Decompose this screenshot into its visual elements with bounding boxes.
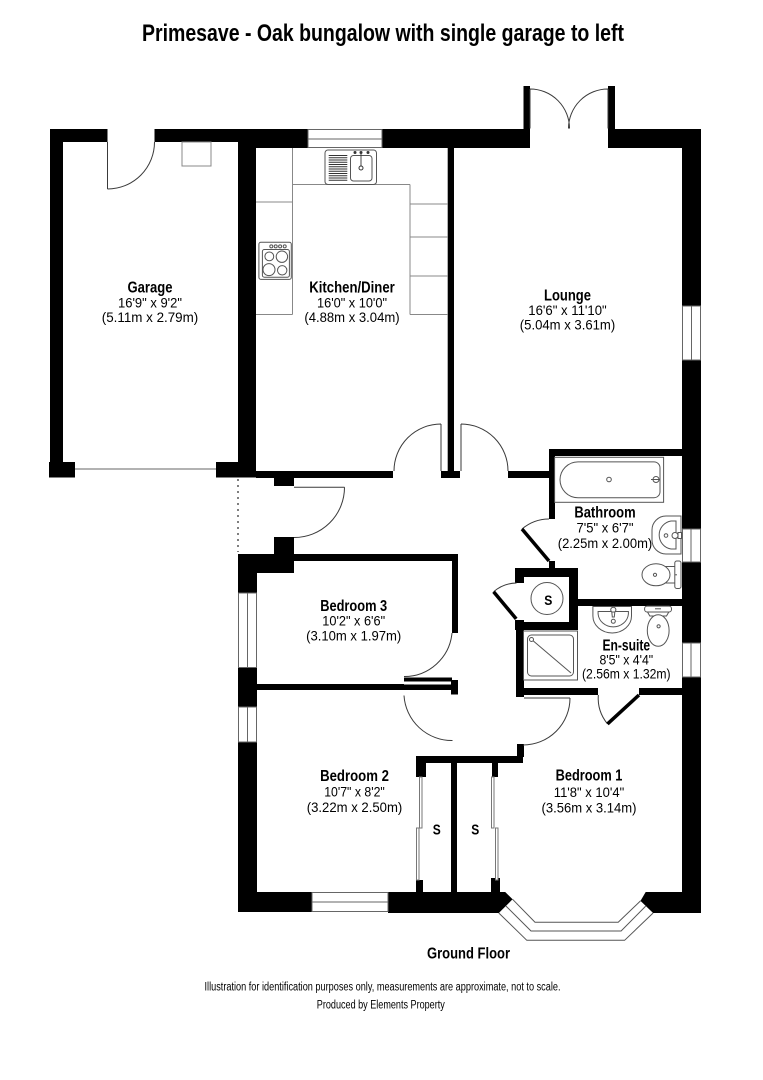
svg-text:S: S xyxy=(471,821,479,838)
svg-text:Ground Floor: Ground Floor xyxy=(427,945,510,962)
svg-text:(4.88m x 3.04m): (4.88m x 3.04m) xyxy=(304,309,399,325)
svg-text:Bedroom 1: Bedroom 1 xyxy=(556,768,623,785)
svg-text:Primesave - Oak bungalow with: Primesave - Oak bungalow with single gar… xyxy=(142,20,624,47)
svg-text:(3.56m x 3.14m): (3.56m x 3.14m) xyxy=(542,799,637,815)
svg-text:(5.11m x 2.79m): (5.11m x 2.79m) xyxy=(102,309,199,325)
svg-text:7'5" x 6'7": 7'5" x 6'7" xyxy=(577,520,634,536)
svg-text:11'8" x 10'4": 11'8" x 10'4" xyxy=(554,784,624,800)
svg-text:(3.22m x 2.50m): (3.22m x 2.50m) xyxy=(307,799,403,815)
svg-text:(5.04m x 3.61m): (5.04m x 3.61m) xyxy=(520,316,615,332)
svg-text:(2.56m x 1.32m): (2.56m x 1.32m) xyxy=(582,666,671,682)
svg-text:Illustration for identificatio: Illustration for identification purposes… xyxy=(205,982,561,994)
svg-text:S: S xyxy=(433,821,441,838)
svg-text:Produced by Elements Property: Produced by Elements Property xyxy=(317,1000,445,1012)
svg-text:(3.10m x 1.97m): (3.10m x 1.97m) xyxy=(306,627,401,643)
svg-text:10'7" x 8'2": 10'7" x 8'2" xyxy=(324,784,385,800)
svg-text:16'9" x 9'2": 16'9" x 9'2" xyxy=(118,294,182,310)
svg-text:S: S xyxy=(544,592,552,608)
svg-text:(2.25m x 2.00m): (2.25m x 2.00m) xyxy=(558,535,653,551)
svg-text:10'2" x 6'6": 10'2" x 6'6" xyxy=(322,613,385,629)
svg-text:16'0" x 10'0": 16'0" x 10'0" xyxy=(317,294,387,310)
